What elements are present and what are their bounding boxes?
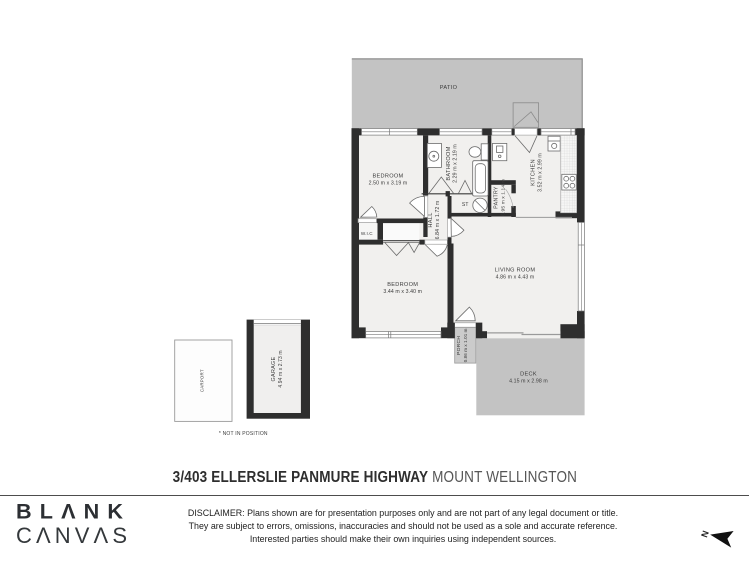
svg-text:CΛNVΛS: CΛNVΛS — [16, 523, 127, 548]
svg-text:BLΛNK: BLΛNK — [16, 498, 123, 523]
svg-text:N: N — [699, 529, 711, 539]
